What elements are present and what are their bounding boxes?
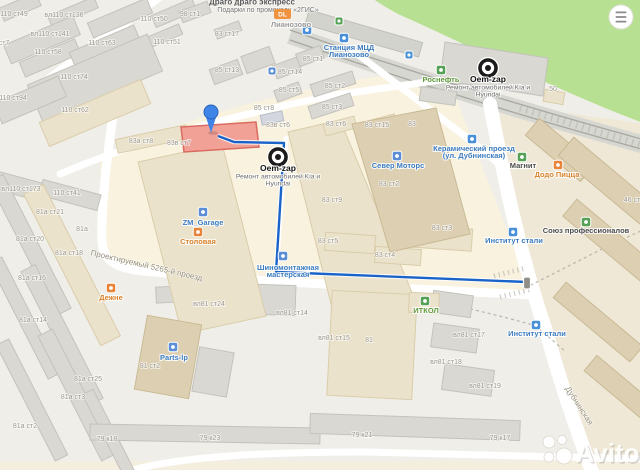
building-label: 81а ст16 xyxy=(18,275,46,282)
building-label: ст7 xyxy=(0,40,9,47)
map-shape xyxy=(327,290,417,399)
car-service-icon xyxy=(198,207,208,217)
map-shape xyxy=(275,154,281,160)
map-shape xyxy=(556,163,560,167)
train-station-icon xyxy=(339,33,349,43)
car-dealer-icon xyxy=(392,151,402,161)
building-label: 85 ст3 xyxy=(322,104,342,111)
office-icon xyxy=(420,296,430,306)
map-shape xyxy=(192,347,234,397)
building-label: 85 ст5 xyxy=(279,87,299,94)
building-label: вл81 ст14 xyxy=(276,310,308,317)
building-label: вл81 ст24 xyxy=(193,301,225,308)
building-label: 110 ст62 xyxy=(61,107,89,114)
marker-subtitle: Hyundai xyxy=(476,92,501,99)
menu-button[interactable] xyxy=(609,5,633,29)
map-shape xyxy=(337,19,340,22)
pizza-icon xyxy=(553,160,563,170)
marker-title: Oem-zap xyxy=(470,74,506,84)
map-shape xyxy=(171,345,175,349)
route-end-stop-marker[interactable] xyxy=(524,277,531,289)
poi-label: Магнит xyxy=(510,161,537,170)
building-label: 85 ст1 xyxy=(303,56,323,63)
poi-label: Столовая xyxy=(180,237,216,246)
map-shape xyxy=(423,299,427,303)
marker-subtitle: Ремонт автомобилей Kia и xyxy=(236,173,321,181)
poi-label: ZM_Garage xyxy=(183,218,224,227)
poi-label: Дежне xyxy=(99,293,123,302)
building-label: 81 xyxy=(365,337,373,344)
poi-label: Институт стали xyxy=(508,329,566,338)
building-label: 81 ст2 xyxy=(140,363,160,370)
station-entrance-icon xyxy=(335,17,343,25)
building-label: 81а ст25 xyxy=(74,376,102,383)
building-label: 110 ст58 xyxy=(34,49,62,56)
map-shape xyxy=(439,68,443,72)
marker-subtitle: Ремонт автомобилей Kia и xyxy=(446,84,531,92)
ad-title: Драго драго экспресс xyxy=(209,0,295,7)
map-shape xyxy=(281,254,285,258)
poi-label: Лианозово xyxy=(271,20,312,29)
watermark-text: Avito xyxy=(576,438,640,468)
building-label: 110 ст94 xyxy=(0,95,27,102)
info-icon xyxy=(268,67,276,75)
building-label: 85 ст2 xyxy=(325,83,345,90)
map-shape xyxy=(584,220,588,224)
building-label: 83 ст9 xyxy=(322,197,342,204)
poi-label: Parts-lp xyxy=(160,353,188,362)
building-label: 110 ст49 xyxy=(0,11,28,18)
building-label: вл81 ст18 xyxy=(430,359,462,366)
poi-label: мастерская xyxy=(267,270,310,279)
cafe-icon xyxy=(106,283,116,293)
ad-badge-label: DL xyxy=(278,12,287,19)
building-label: 110 ст63 xyxy=(88,40,116,47)
poi-label: Север Моторс xyxy=(372,161,425,170)
building-label: 83 ст17 xyxy=(215,31,239,38)
building-label: 81а xyxy=(76,226,88,233)
map-shape xyxy=(616,12,627,14)
building-label: 83 xyxy=(408,121,416,128)
tire-service-icon xyxy=(278,251,288,261)
marker-subtitle: Hyundai xyxy=(266,181,291,188)
building-label: 83в ст7 xyxy=(167,140,191,147)
building-label: 79 к23 xyxy=(200,435,221,442)
map-shape xyxy=(616,16,627,18)
map-shape xyxy=(520,155,524,159)
building-label: вл110 ст136 xyxy=(44,12,83,19)
map-shape xyxy=(524,277,531,289)
map-shape xyxy=(511,230,515,234)
building-label: 110 ст50 xyxy=(140,16,168,23)
building-label: 79 к18 xyxy=(97,436,118,443)
poi-label: ИТКОЛ xyxy=(413,306,438,315)
poi-label: Лианозово xyxy=(329,50,370,59)
fuel-station-icon xyxy=(436,65,446,75)
building-label: 83 ст5 xyxy=(318,238,338,245)
map-canvas[interactable]: Проектируемый 5265-й проездДубнинская 11… xyxy=(0,0,640,470)
map-shape xyxy=(543,436,555,448)
building-label: 85 ст8 xyxy=(254,105,274,112)
building-label: 83 ст6 xyxy=(326,121,346,128)
building-label: 81а ст3 xyxy=(61,394,85,401)
building-label: 81а ст2 xyxy=(13,423,37,430)
poi-label: Институт стали xyxy=(485,236,543,245)
building-label: 110 ст51 xyxy=(153,39,181,46)
map-shape xyxy=(556,448,572,464)
bus-stop-icon xyxy=(467,134,477,144)
map-shape xyxy=(196,230,200,234)
marker-title: Oem-zap xyxy=(260,163,296,173)
poi-label: Роснефть xyxy=(423,75,460,84)
map-shape xyxy=(395,154,399,158)
building-label: 110 ст74 xyxy=(60,74,88,81)
building-label: 81а ст20 xyxy=(16,236,44,243)
map-shape xyxy=(208,131,218,135)
building-label: 46 ст1 xyxy=(624,197,640,204)
map-shape xyxy=(534,323,538,327)
hamburger-menu-icon xyxy=(616,12,627,23)
poi-label: (ул. Дубнинская) xyxy=(443,151,506,160)
map-shape xyxy=(616,21,627,23)
map-shape xyxy=(407,53,410,56)
map-shape xyxy=(109,286,113,290)
building-label: вл81 ст17 xyxy=(453,332,485,339)
building-label: 79 к17 xyxy=(490,435,511,442)
poi-label: Додо Пицца xyxy=(535,170,581,179)
building-label: 83 ст4 xyxy=(375,252,395,259)
map-shape xyxy=(558,436,567,445)
building-label: 85 ст13 xyxy=(215,67,239,74)
cafe-icon xyxy=(193,227,203,237)
building-label: 83 ст15 xyxy=(365,122,389,129)
poi-label: Союз профессионалов xyxy=(543,226,630,235)
map-shape xyxy=(342,36,346,40)
building-label: 83 ст3 xyxy=(432,225,452,232)
map-shape xyxy=(470,137,474,141)
building-label: 98 ст1 xyxy=(180,11,200,18)
building-label: вл110 ст141 xyxy=(30,31,69,38)
map-shape xyxy=(204,105,218,119)
map-shape xyxy=(0,461,640,470)
building-label: вл110 ст173 xyxy=(1,186,40,193)
building-label: 83в ст6 xyxy=(266,122,290,129)
map-shape xyxy=(201,210,205,214)
ad-subtitle: Подарки по промокоду «2ГИС» xyxy=(217,7,319,14)
building-label: вл81 ст15 xyxy=(318,335,350,342)
building-label: 110 ст41 xyxy=(53,190,81,197)
auto-parts-icon xyxy=(168,342,178,352)
building-label: вл81 ст19 xyxy=(469,383,501,390)
map-shape xyxy=(544,452,554,462)
building-label: 79 к21 xyxy=(352,432,373,439)
building-label: 81а ст21 xyxy=(36,209,64,216)
building-label: 85 ст14 xyxy=(278,69,302,76)
building-label: 81а ст14 xyxy=(19,317,47,324)
building-label: 83а ст8 xyxy=(129,138,153,145)
building-label: 81а ст18 xyxy=(55,250,83,257)
building-label: 50 xyxy=(549,86,557,93)
map-shape xyxy=(485,65,491,71)
map-shape xyxy=(270,69,273,72)
bus-stop-icon xyxy=(405,51,413,59)
building-label: 83 ст2 xyxy=(379,181,399,188)
